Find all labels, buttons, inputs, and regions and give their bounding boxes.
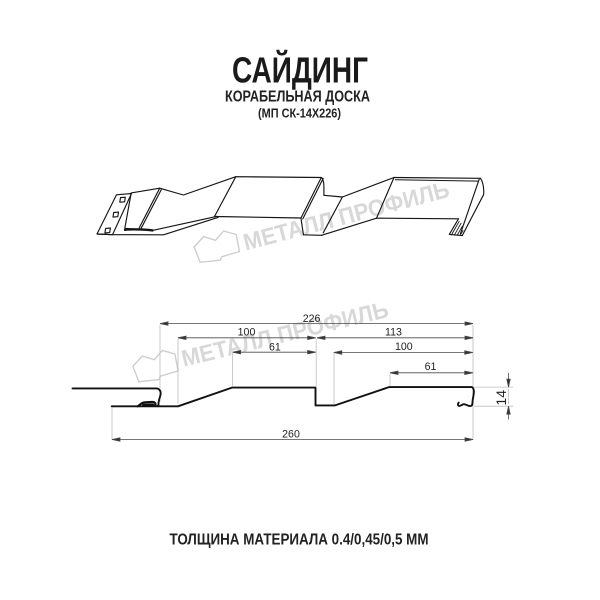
svg-text:14: 14: [493, 390, 509, 406]
svg-text:61: 61: [425, 361, 437, 373]
svg-text:САЙДИНГ: САЙДИНГ: [232, 48, 368, 90]
svg-text:ТОЛЩИНА МАТЕРИАЛА 0.4/0,45/0,5: ТОЛЩИНА МАТЕРИАЛА 0.4/0,45/0,5 ММ: [170, 532, 429, 549]
svg-text:100: 100: [395, 341, 413, 353]
svg-text:61: 61: [269, 341, 281, 353]
svg-text:100: 100: [238, 327, 256, 339]
svg-text:260: 260: [282, 428, 300, 440]
svg-text:226: 226: [303, 313, 321, 325]
svg-text:(МП СК-14Х226): (МП СК-14Х226): [258, 106, 341, 121]
svg-text:КОРАБЕЛЬНАЯ ДОСКА: КОРАБЕЛЬНАЯ ДОСКА: [225, 88, 370, 105]
svg-text:113: 113: [385, 327, 402, 339]
